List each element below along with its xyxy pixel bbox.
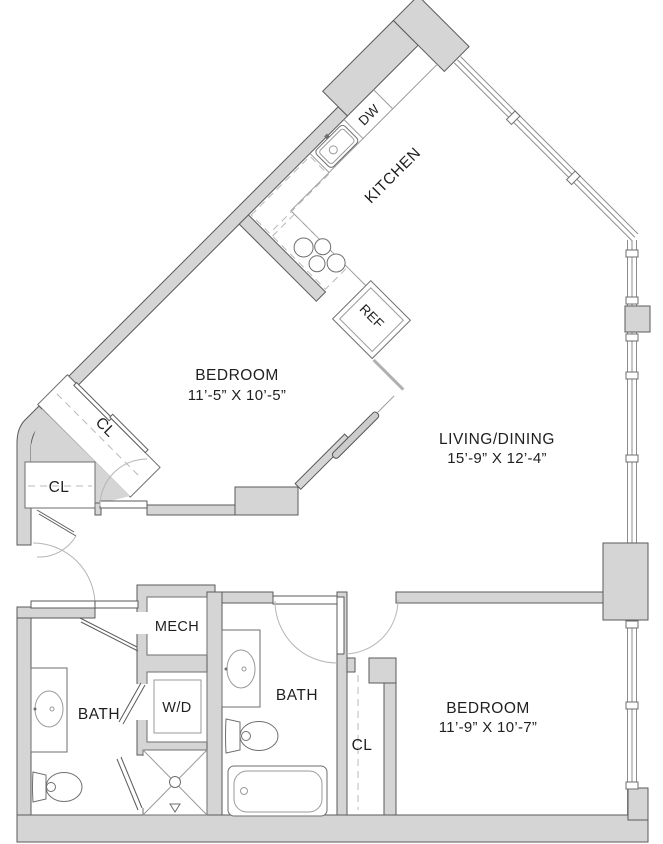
closet-entry-label: CL (49, 479, 70, 496)
bedroom2-door-arc (344, 600, 398, 654)
bath1-faucet-icon (34, 708, 37, 711)
diagonal-wing: CL (24, 0, 648, 619)
bath2-faucet-icon (225, 668, 228, 671)
bedroom1-south-wall (147, 505, 235, 515)
bath2-vanity (222, 630, 260, 707)
bath1-north-wall (17, 607, 95, 618)
living-dining-label: LIVING/DINING (439, 431, 555, 448)
closet-entry-door-leaf-b (39, 514, 76, 536)
window-mullion-v8 (626, 782, 638, 789)
bath1-door-leaf (95, 601, 138, 608)
bath1-sink (35, 691, 63, 727)
closet-entry-door-arc (37, 536, 76, 557)
closet-bedroom2-jamb-right (369, 658, 396, 683)
exterior-wall-west-lower (17, 607, 31, 842)
bath2-door-arc (275, 601, 337, 663)
floor-plan-canvas: CL (0, 0, 663, 844)
stove-burner-3 (306, 252, 329, 275)
closet-entry-door-leaf-a (37, 510, 74, 532)
mech-label: MECH (155, 619, 199, 635)
mech-door-leaf-b (81, 622, 138, 651)
bedroom2-door-leaf (337, 597, 344, 654)
bath1-vanity (31, 668, 67, 752)
bath1-toilet-tank (33, 772, 47, 802)
counter-return-line (349, 269, 366, 286)
bedroom2-north-wall (396, 592, 603, 603)
sliding-door-panel (331, 411, 380, 460)
bedroom1-south-wall-block (235, 487, 298, 515)
bedroom1-east-wall (295, 434, 350, 489)
bedroom1-sliding-door (295, 390, 397, 492)
east-wall-corner-block (628, 788, 648, 820)
shower (117, 750, 207, 815)
window-glass-line-1 (454, 63, 631, 240)
entry-door-leaf (31, 601, 95, 608)
dishwasher-label: DW (356, 101, 383, 128)
window-mullion-d1 (507, 111, 520, 124)
bedroom1-dims: 11’-5” X 10’-5” (188, 387, 286, 404)
closet-bedroom2-label: CL (352, 737, 373, 754)
stove-burner-2 (311, 235, 334, 258)
bath2-label: BATH (276, 687, 318, 704)
window-mullion-v2 (626, 297, 638, 304)
window-glass-line-3 (461, 57, 638, 234)
bath2: BATH (222, 596, 337, 816)
mech-door-opening (136, 612, 148, 634)
bath2-sink (227, 650, 255, 688)
entry-door-arc (33, 543, 95, 605)
window-mullion-v7 (626, 702, 638, 709)
window-mullion-v1 (626, 250, 638, 257)
walls (17, 306, 650, 842)
sliding-door-track (377, 396, 394, 413)
window-wall-diagonal (452, 57, 638, 243)
bath2-door-leaf (273, 596, 337, 604)
bedroom1-door-leaf (100, 501, 147, 508)
bath2-toilet-tank (226, 719, 241, 753)
east-wall-column (625, 306, 650, 332)
exterior-wall-south (17, 815, 648, 842)
stove-burner-4 (323, 250, 348, 275)
kitchen-label: KITCHEN (362, 144, 425, 207)
window-glass-line-2 (457, 60, 634, 237)
mech-door-leaf-a (80, 618, 137, 647)
bath1-toilet (33, 772, 83, 802)
shower-drain (170, 777, 181, 788)
floor-plan-svg: CL (0, 0, 663, 844)
bath2-toilet-hinge (242, 732, 251, 741)
bedroom1-label: BEDROOM (195, 367, 279, 384)
counter-section-line-3 (374, 90, 393, 109)
kitchen-counters: REF DW KITCHEN (237, 44, 583, 390)
window-mullion-v6 (626, 621, 638, 628)
bedroom2-dims: 11’-9” X 10’-7” (439, 719, 537, 736)
shower-door-leaf-b (117, 759, 138, 810)
bath2-toilet (226, 719, 279, 753)
laundry-label: W/D (162, 700, 191, 716)
laundry-closet: W/D (119, 672, 207, 742)
window-mullion-v3 (626, 334, 638, 341)
refrigerator: REF (333, 281, 442, 390)
entry-door (31, 543, 95, 608)
refrigerator-door-line (374, 360, 404, 390)
bath1-toilet-hinge (47, 783, 56, 792)
window-mullion-v5 (626, 455, 638, 462)
bedroom2-label: BEDROOM (446, 700, 530, 717)
bath1-label: BATH (78, 706, 120, 723)
window-mullion-v4 (626, 372, 638, 379)
bath2-tub (228, 766, 327, 816)
living-dining-dims: 15’-9” X 12’-4” (447, 450, 547, 467)
closet-bedroom2: CL (352, 675, 373, 810)
east-wall-block-large (603, 543, 648, 620)
bath-divider-wall (207, 592, 222, 815)
window-mullion-d2 (567, 171, 580, 184)
closet-bedroom2-jamb-left (347, 658, 355, 672)
